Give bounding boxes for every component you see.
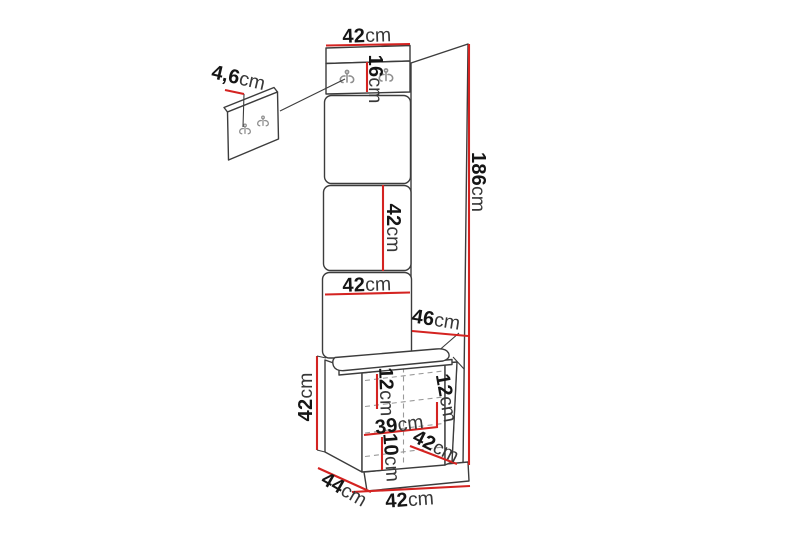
bench-height-tick-bottom bbox=[317, 450, 325, 452]
bench-left-side bbox=[325, 360, 362, 472]
panel-cushion-top bbox=[325, 96, 411, 184]
dim-label-hook-board-height: 16cm bbox=[364, 55, 386, 104]
dim-label-bench-plinth-height: 10cm bbox=[378, 433, 403, 483]
dim-label-total-height: 186cm bbox=[467, 152, 489, 212]
furniture-dimension-diagram: 42cm 16cm 4,6cm 186cm 42cm 42cm 46cm 42c… bbox=[0, 0, 800, 533]
dim-label-bench-width: 42cm bbox=[385, 487, 435, 512]
detail-panel-front-face bbox=[228, 92, 279, 160]
dim-label-bench-front-top-height: 12cm bbox=[374, 367, 398, 416]
dim-label-bench-depth: 44cm bbox=[317, 468, 370, 511]
diagram-canvas: 42cm 16cm 4,6cm 186cm 42cm 42cm 46cm 42c… bbox=[0, 0, 800, 533]
dim-label-panel-top-width: 42cm bbox=[342, 24, 391, 48]
dim-line-hook-panel-depth bbox=[225, 90, 244, 94]
dim-label-hook-panel-depth: 4,6cm bbox=[209, 61, 267, 95]
dim-label-middle-panel-height: 42cm bbox=[382, 204, 404, 253]
dim-label-middle-panel-width: 42cm bbox=[342, 273, 391, 297]
dim-label-bench-height: 42cm bbox=[295, 373, 317, 422]
